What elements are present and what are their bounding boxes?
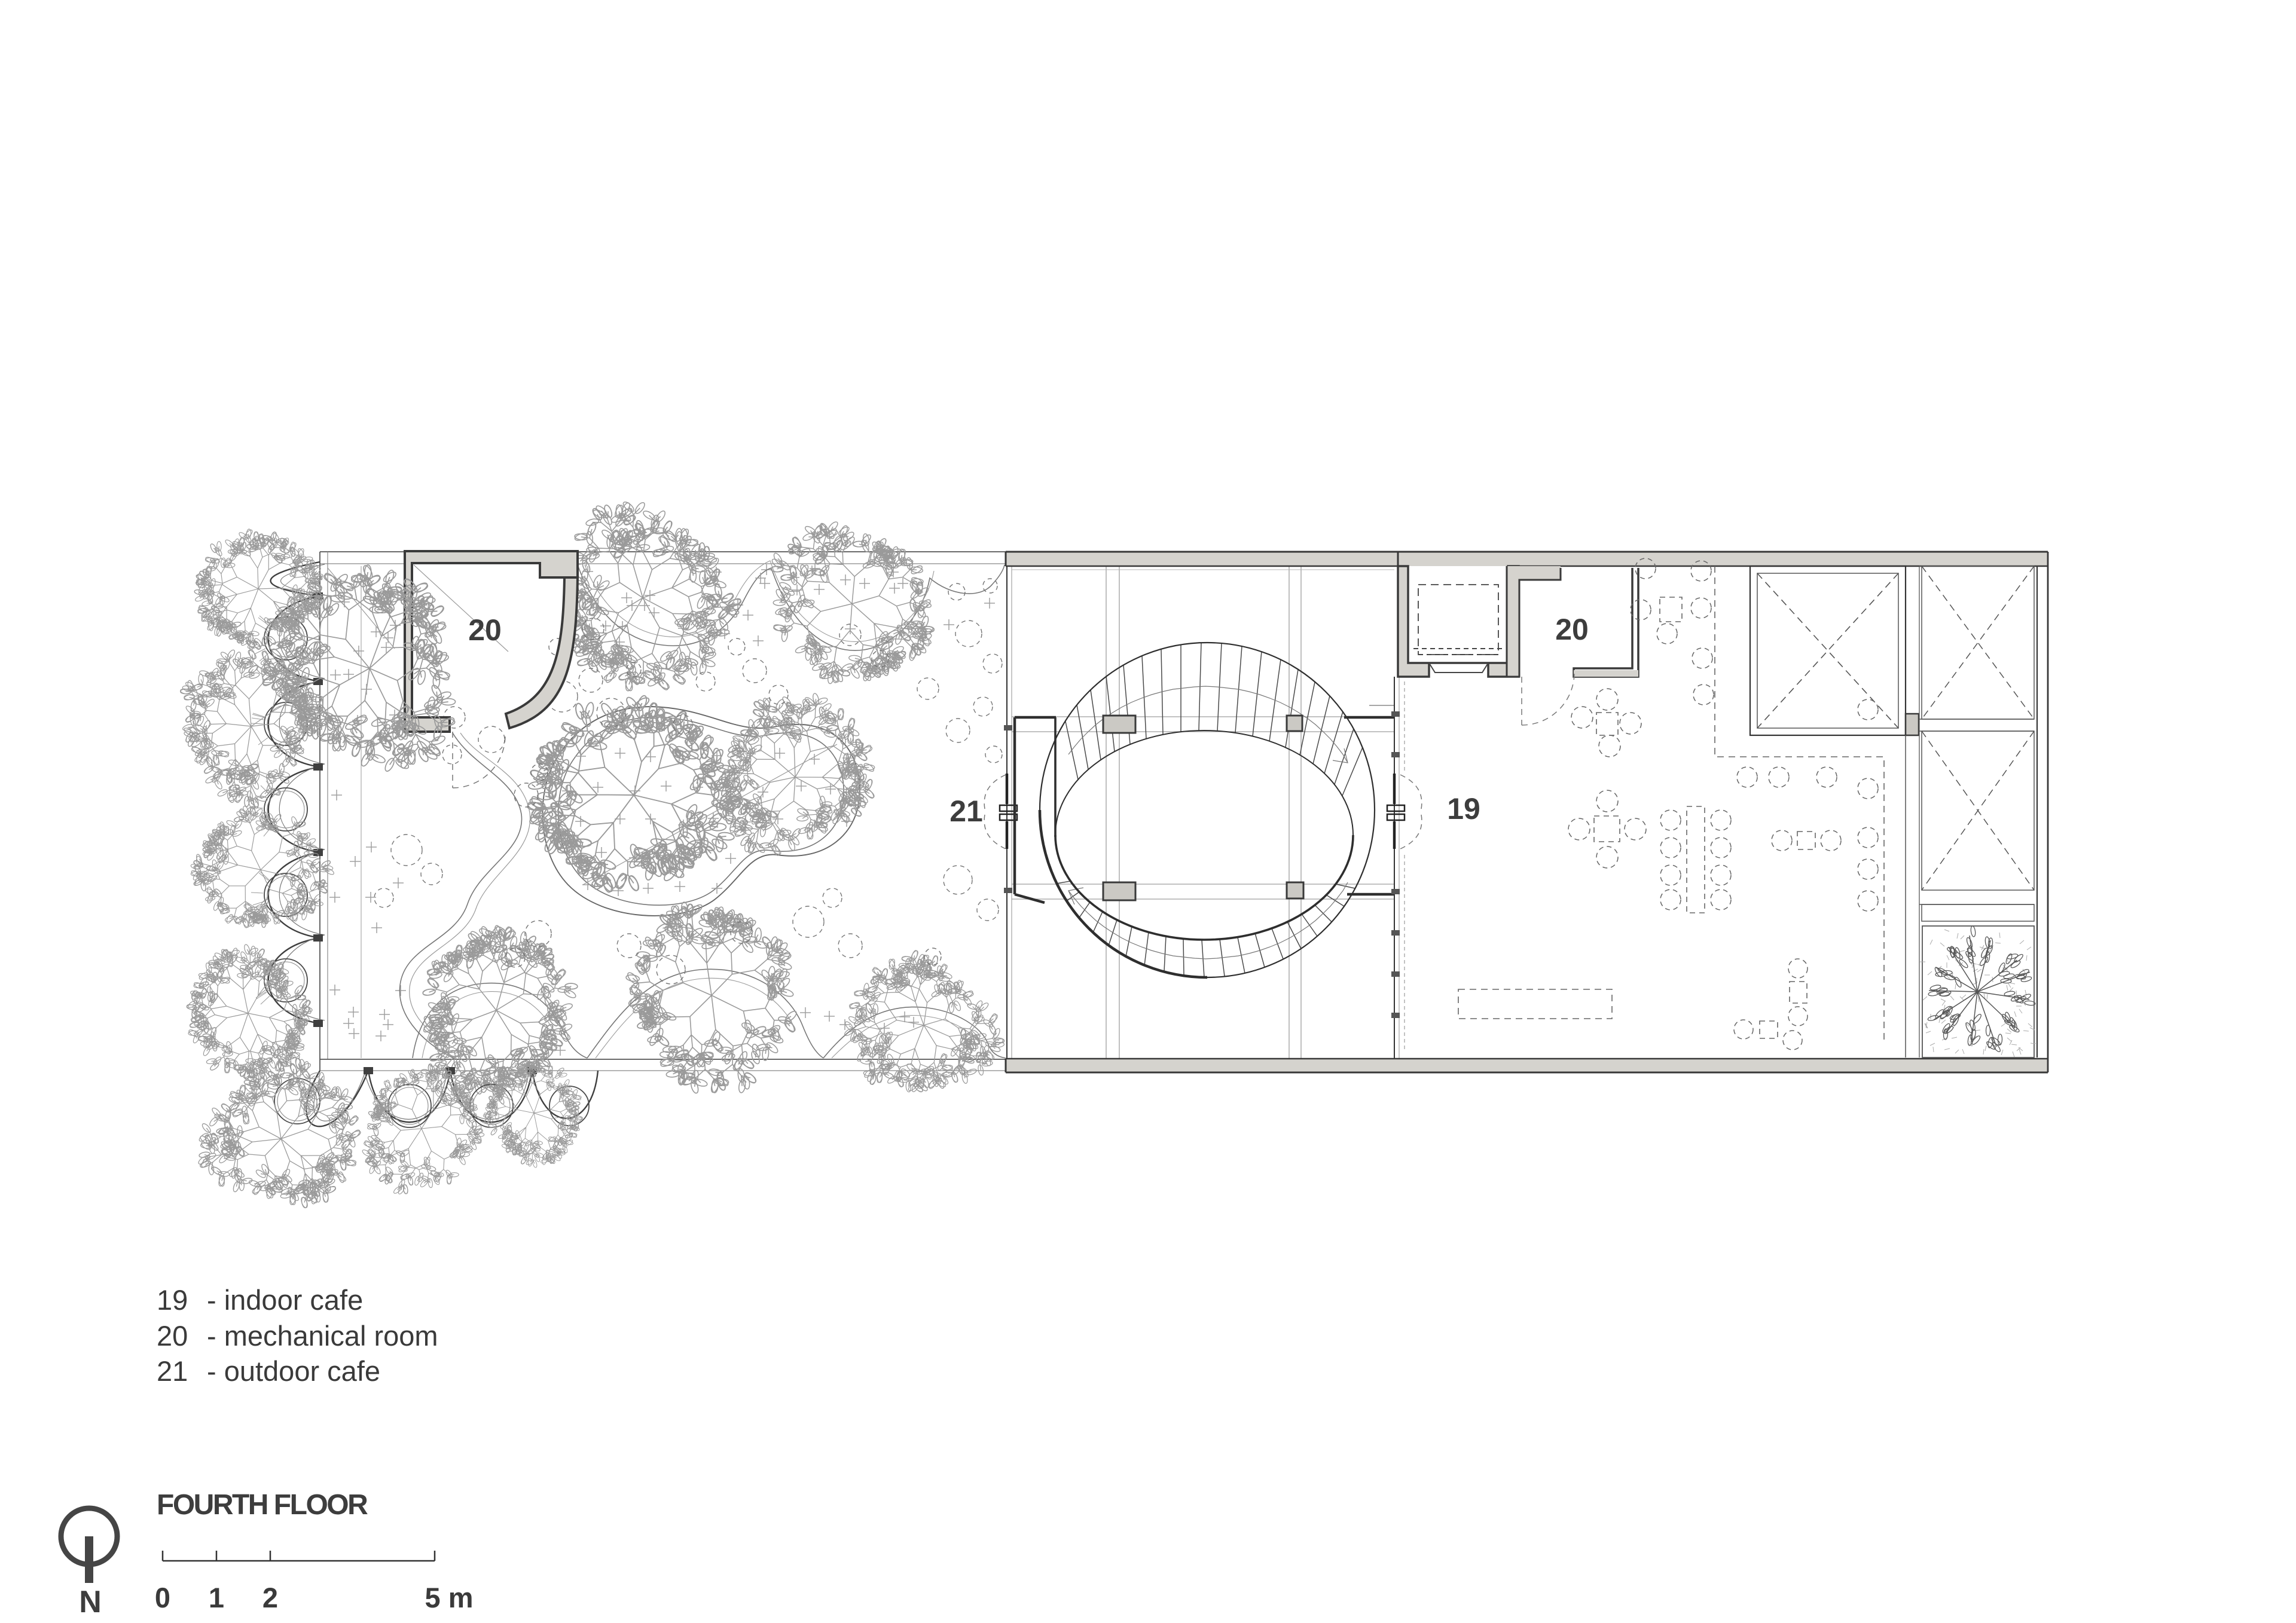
- svg-text:5 m: 5 m: [425, 1582, 474, 1613]
- svg-text:N: N: [79, 1585, 102, 1619]
- svg-text:- mechanical room: - mechanical room: [207, 1320, 438, 1352]
- svg-text:19: 19: [1447, 792, 1480, 826]
- svg-text:19: 19: [157, 1284, 188, 1316]
- svg-text:1: 1: [209, 1582, 224, 1613]
- svg-text:FOURTH FLOOR: FOURTH FLOOR: [157, 1489, 368, 1521]
- svg-text:2: 2: [262, 1582, 278, 1613]
- svg-text:21: 21: [949, 794, 983, 828]
- svg-text:- outdoor cafe: - outdoor cafe: [207, 1355, 380, 1387]
- svg-text:20: 20: [468, 613, 502, 647]
- svg-text:20: 20: [157, 1320, 188, 1352]
- svg-text:- indoor cafe: - indoor cafe: [207, 1284, 363, 1316]
- svg-text:21: 21: [157, 1355, 188, 1387]
- svg-text:0: 0: [155, 1582, 170, 1613]
- svg-text:20: 20: [1555, 613, 1589, 646]
